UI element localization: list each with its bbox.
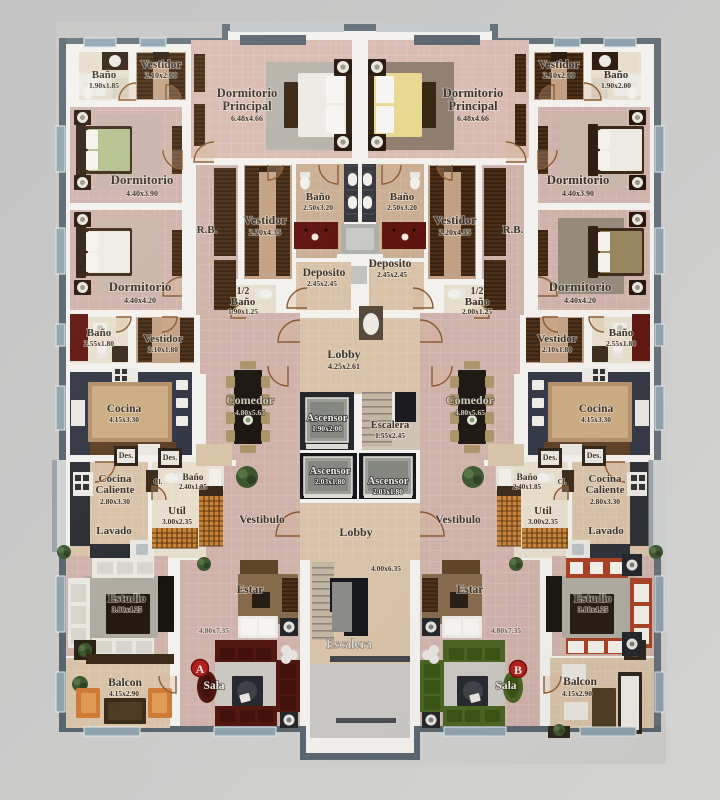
svg-text:A: A <box>196 662 205 676</box>
svg-text:B: B <box>514 663 522 677</box>
